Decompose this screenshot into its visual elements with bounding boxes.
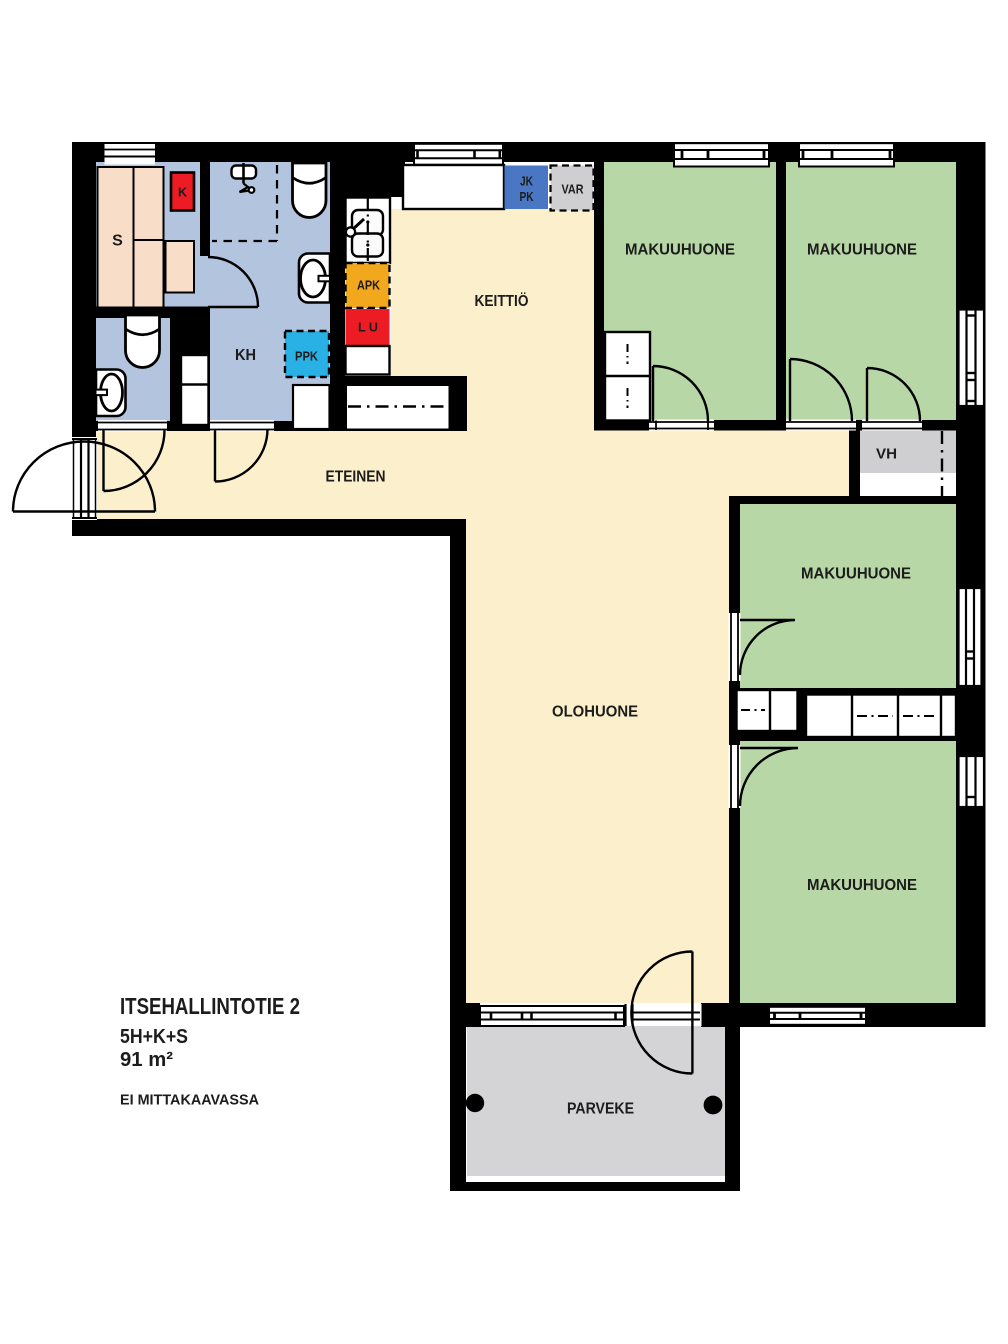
svg-text:MAKUUHUONE: MAKUUHUONE (807, 877, 917, 894)
svg-text:VAR: VAR (562, 183, 584, 197)
svg-text:5H+K+S: 5H+K+S (120, 1026, 188, 1048)
svg-text:OLOHUONE: OLOHUONE (552, 704, 638, 721)
svg-text:MAKUUHUONE: MAKUUHUONE (807, 242, 917, 259)
svg-text:KH: KH (235, 347, 256, 364)
svg-text:PPK: PPK (295, 350, 318, 364)
svg-text:ITSEHALLINTOTIE 2: ITSEHALLINTOTIE 2 (120, 993, 300, 1019)
svg-text:APK: APK (357, 279, 380, 293)
svg-text:EI MITTAKAAVASSA: EI MITTAKAAVASSA (120, 1092, 259, 1109)
svg-text:91 m²: 91 m² (120, 1049, 173, 1071)
svg-text:PK: PK (520, 189, 534, 204)
svg-text:S: S (112, 233, 123, 250)
svg-text:MAKUUHUONE: MAKUUHUONE (801, 566, 911, 583)
svg-text:MAKUUHUONE: MAKUUHUONE (625, 242, 735, 259)
svg-text:JK: JK (520, 174, 533, 189)
svg-text:ETEINEN: ETEINEN (326, 469, 386, 486)
svg-text:K: K (178, 186, 187, 200)
svg-text:L U: L U (358, 321, 378, 335)
svg-text:PARVEKE: PARVEKE (567, 1101, 634, 1118)
svg-text:VH: VH (876, 446, 897, 463)
svg-text:KEITTIÖ: KEITTIÖ (475, 291, 529, 310)
